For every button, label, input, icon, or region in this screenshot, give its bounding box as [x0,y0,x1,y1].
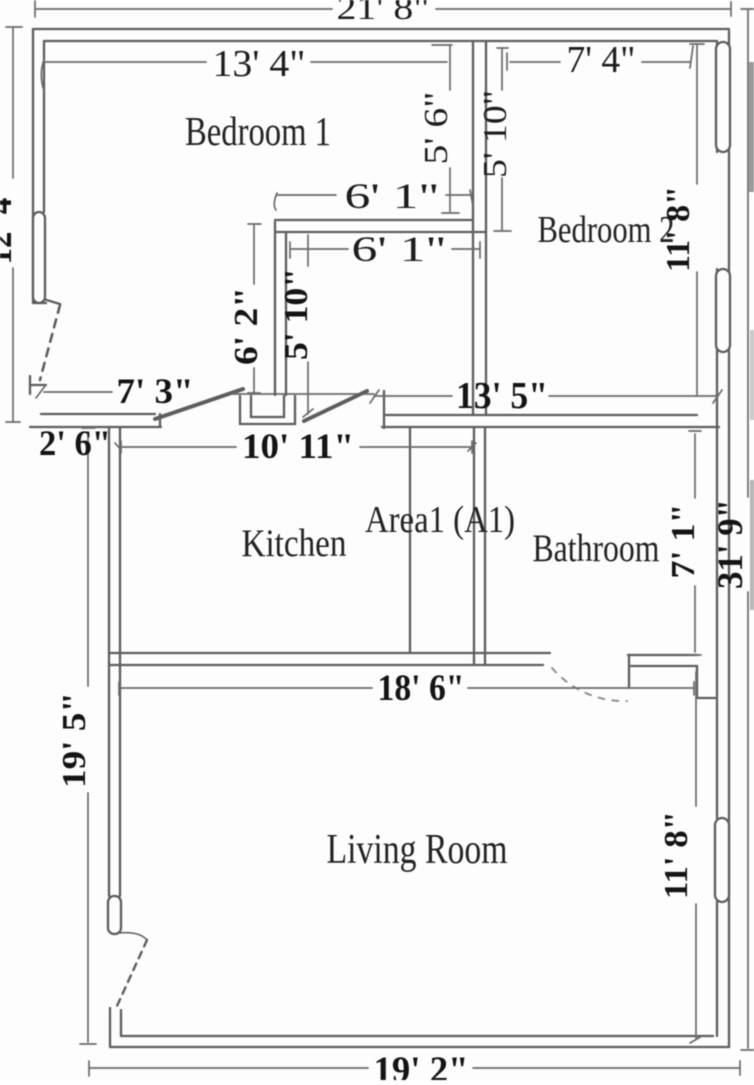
svg-text:5' 10": 5' 10" [477,90,514,178]
svg-text:13' 5": 13' 5" [456,375,548,417]
svg-text:5' 10": 5' 10" [278,268,315,360]
svg-text:Area1 (A1): Area1 (A1) [365,499,515,541]
svg-text:11' 8": 11' 8" [658,811,695,899]
svg-text:10' 11": 10' 11" [242,426,354,466]
svg-text:Kitchen: Kitchen [242,522,347,565]
svg-text:12' 4": 12' 4" [0,180,19,265]
svg-text:7' 1": 7' 1" [665,504,702,579]
svg-text:5' 6": 5' 6" [418,92,455,165]
svg-text:Bedroom 1: Bedroom 1 [185,108,331,154]
svg-text:Living Room: Living Room [327,827,508,873]
svg-text:6' 1": 6' 1" [345,176,440,216]
svg-text:19' 2": 19' 2" [374,1050,469,1080]
svg-text:21' 8": 21' 8" [337,0,430,27]
svg-text:6' 2": 6' 2" [228,287,265,365]
svg-text:19' 5": 19' 5" [56,692,93,788]
svg-text:31' 9": 31' 9" [710,499,750,589]
svg-text:Bathroom: Bathroom [533,527,660,570]
svg-text:18' 6": 18' 6" [378,668,465,709]
svg-text:7' 4": 7' 4" [567,39,636,81]
svg-text:Bedroom 2: Bedroom 2 [538,209,675,251]
svg-text:7' 3": 7' 3" [117,371,194,411]
svg-text:2' 6": 2' 6" [39,423,111,463]
svg-text:6' 1": 6' 1" [352,229,447,269]
svg-text:11' 8": 11' 8" [660,186,697,272]
svg-text:13' 4": 13' 4" [213,43,306,85]
